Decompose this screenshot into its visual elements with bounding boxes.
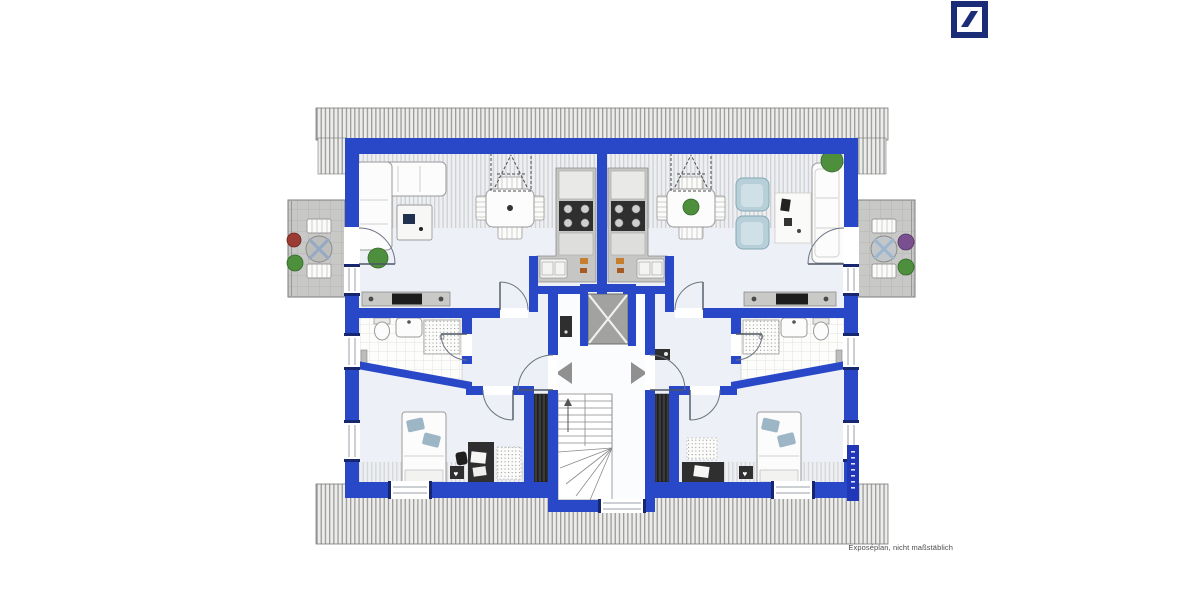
roof-corner-top-left: [318, 138, 347, 174]
window: [391, 481, 429, 499]
wall-bath-top-left: [352, 308, 500, 318]
bed-foot: [405, 470, 443, 482]
rug-decor: [797, 229, 801, 233]
window: [344, 266, 360, 293]
burner: [632, 219, 640, 227]
burner: [615, 219, 623, 227]
heart-icon: ♥: [743, 470, 748, 479]
elevator-shaft-wall: [628, 288, 636, 346]
floorplan-page: ♥: [0, 0, 1200, 600]
armchair-cushion: [741, 184, 763, 207]
speaker: [752, 297, 757, 302]
apartment-entry-opening: [548, 355, 558, 390]
tv: [392, 294, 422, 305]
roof-slope-dark-strip: [655, 394, 669, 482]
burner: [615, 205, 623, 213]
kitchen-cabinet: [559, 171, 593, 199]
balcony-chair: [872, 219, 896, 233]
wall-bedroom-side-left: [524, 386, 534, 482]
coffee-table-tray: [403, 214, 415, 224]
speaker: [439, 297, 444, 302]
wall-kitchen-stub-right: [665, 256, 674, 312]
desk-chair-mat: [687, 438, 717, 460]
armchair-cushion: [741, 222, 763, 245]
stove: [559, 201, 593, 231]
toilet: [375, 322, 390, 340]
wall-hall-right: [623, 286, 665, 294]
burner: [581, 205, 589, 213]
stove: [611, 201, 645, 231]
plant-pot-green: [898, 259, 914, 275]
stairwell-wall-left: [548, 294, 558, 500]
roof-slope-dark-strip: [533, 394, 548, 482]
coffee-table-decor: [419, 227, 423, 231]
wall-center-dividing: [597, 154, 607, 294]
kitchen-cabinet: [611, 171, 645, 199]
balcony-door-opening: [843, 227, 859, 265]
washbasin-faucet: [407, 320, 411, 324]
speaker: [824, 297, 829, 302]
balcony-left: [287, 200, 345, 297]
balcony-right: [858, 200, 915, 297]
plant: [368, 248, 388, 268]
wall-kitchen-stub-left: [529, 256, 538, 312]
elevator-shaft-wall: [580, 288, 588, 346]
bed-foot: [760, 470, 798, 482]
window: [344, 336, 360, 367]
balcony-chair: [307, 264, 331, 278]
washbasin-faucet: [792, 320, 796, 324]
balcony-chair: [872, 264, 896, 278]
door-opening: [483, 386, 513, 395]
wall-bottom-left: [345, 482, 548, 498]
window: [774, 481, 812, 499]
corner-sofa: [356, 162, 392, 250]
table-centerpiece: [507, 205, 513, 211]
flower-pot-purple: [898, 234, 914, 250]
door-opening: [690, 386, 720, 395]
wall-hall-left: [538, 286, 580, 294]
burner: [632, 205, 640, 213]
wall-bottom-right: [655, 482, 858, 498]
kitchen-item: [580, 268, 587, 273]
roof-corner-top-right: [856, 138, 886, 174]
rug: [775, 193, 811, 243]
kitchen-item: [617, 268, 624, 273]
burner: [581, 219, 589, 227]
window: [843, 336, 859, 367]
window: [843, 266, 859, 293]
rug-decor: [784, 218, 792, 226]
kitchen-item: [580, 258, 588, 264]
wall-bedroom-side-right: [669, 386, 679, 482]
toilet: [814, 322, 829, 340]
worktop: [611, 233, 645, 255]
floorplan-drawing: ♥: [0, 0, 1200, 600]
door-opening: [500, 308, 528, 318]
desk-paper: [693, 465, 709, 478]
entry-mat-dot: [664, 352, 668, 356]
cabinet-knob: [564, 330, 567, 333]
wall-bath-side-right: [731, 318, 741, 334]
stairwell-window: [601, 499, 643, 513]
door-opening: [731, 334, 741, 356]
plan-credit-watermark: [847, 445, 859, 501]
rug-decor: [780, 199, 791, 212]
apartment-entry-opening: [645, 355, 655, 390]
balcony-door-opening: [344, 227, 360, 265]
kitchen-item: [616, 258, 624, 264]
plan-caption: Exposéplan, nicht maßstäblich: [753, 543, 953, 552]
rug: [497, 447, 521, 479]
stairwell-wall-right: [645, 294, 655, 500]
window: [344, 423, 360, 459]
wall-bedroom-top-right: [720, 386, 737, 395]
tv: [776, 294, 808, 305]
table-plant: [683, 199, 699, 215]
speaker: [369, 297, 374, 302]
wall-bath-top-right: [703, 308, 851, 318]
winding-staircase: [558, 394, 612, 500]
wall-bedroom-top-left: [466, 386, 483, 395]
shower: [743, 320, 779, 354]
burner: [564, 205, 572, 213]
door-opening: [675, 308, 703, 318]
shower: [424, 320, 460, 354]
wall-top: [345, 138, 858, 154]
worktop: [559, 233, 593, 255]
door-opening: [462, 334, 472, 356]
desk-paper: [470, 451, 486, 464]
desk-paper: [473, 466, 487, 477]
wall-bath-side-left: [462, 318, 472, 334]
stairwell-cabinet: [560, 316, 572, 337]
flower-pot-red: [287, 233, 301, 247]
plant-pot-green: [287, 255, 303, 271]
balcony-chair: [307, 219, 331, 233]
deutsche-bank-logo: [951, 1, 988, 38]
heart-icon: ♥: [454, 470, 459, 479]
roof-band-top: [316, 108, 888, 140]
burner: [564, 219, 572, 227]
